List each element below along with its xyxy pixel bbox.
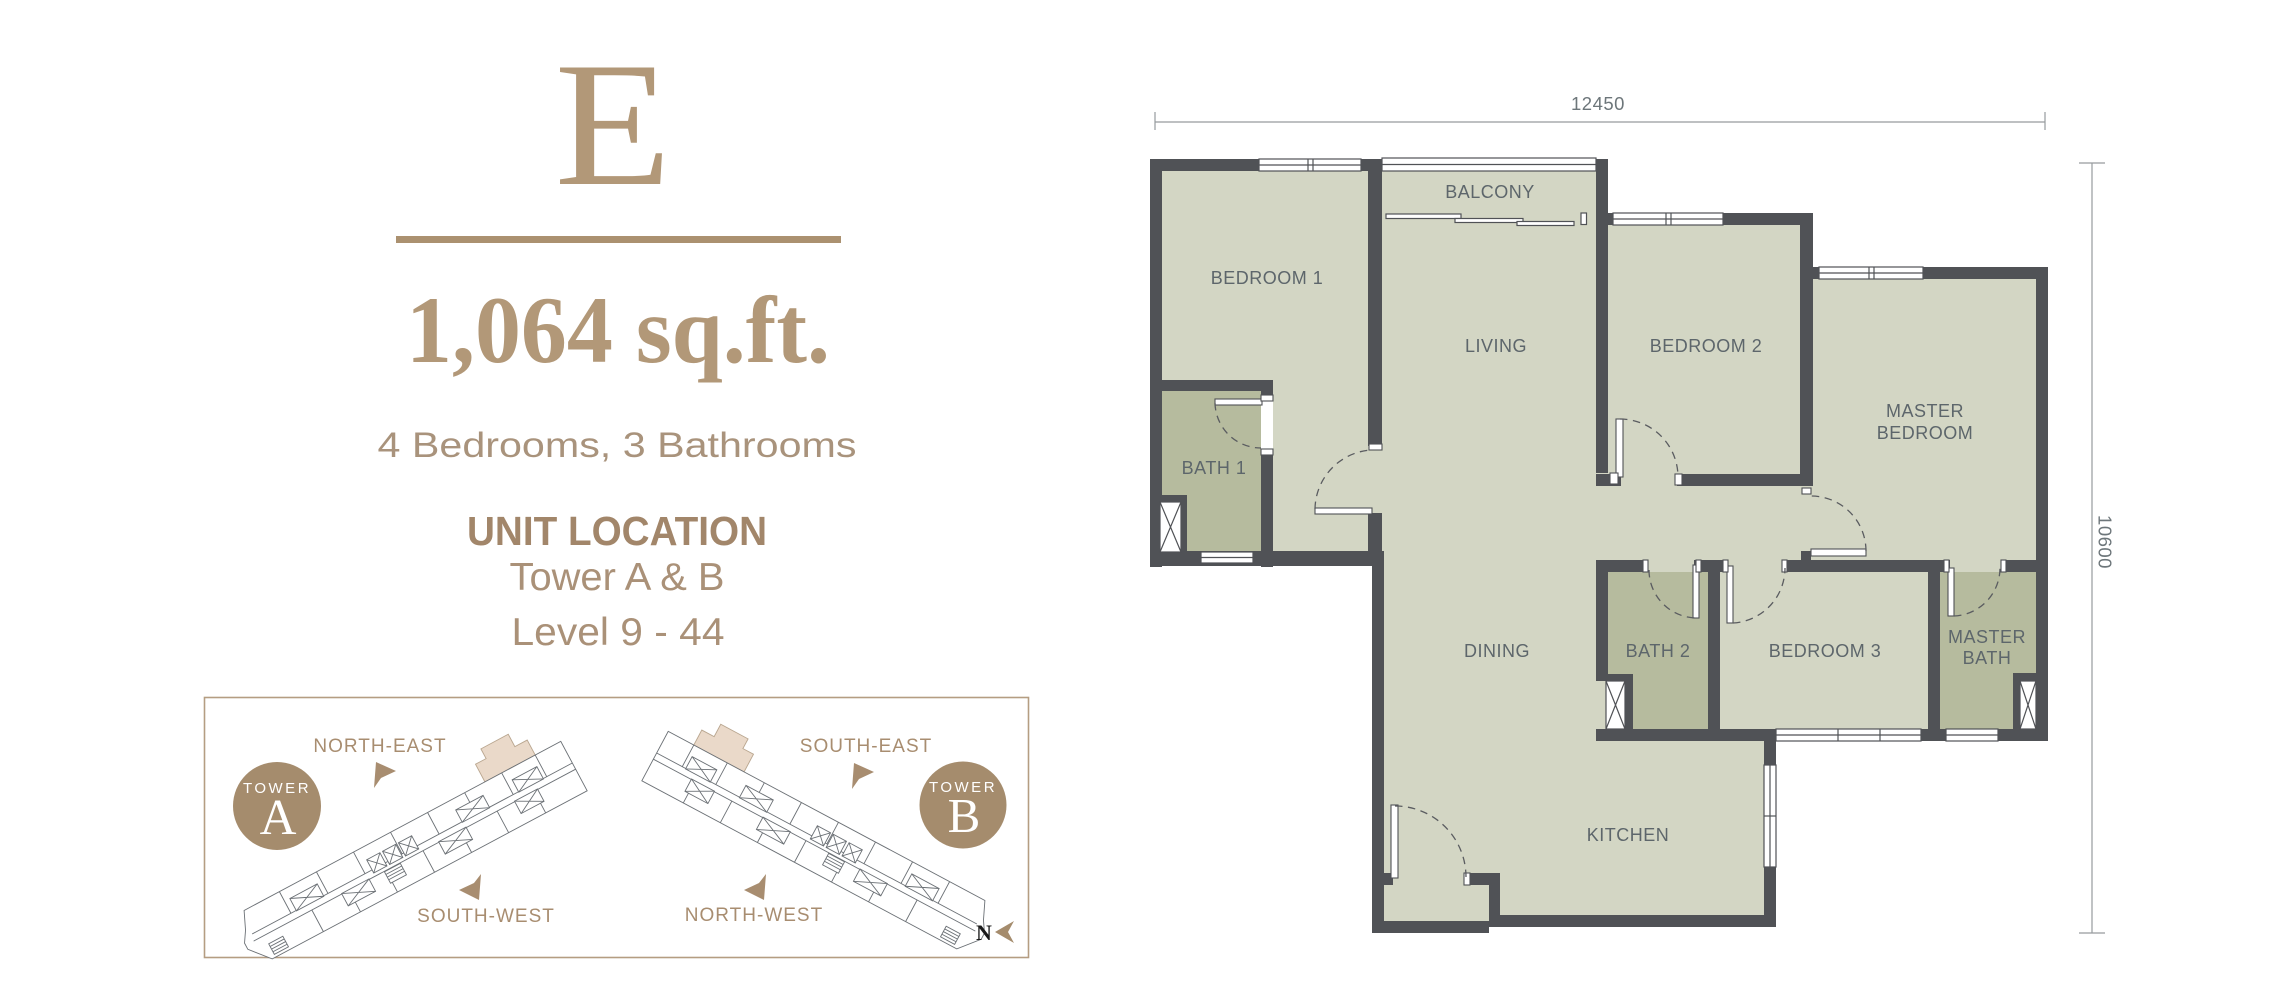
- svg-text:Level 9 - 44: Level 9 - 44: [512, 611, 725, 654]
- svg-text:A: A: [260, 790, 297, 846]
- svg-text:SOUTH-WEST: SOUTH-WEST: [417, 906, 555, 927]
- svg-text:12450: 12450: [1571, 93, 1625, 114]
- svg-text:BEDROOM: BEDROOM: [1877, 423, 1974, 443]
- svg-text:LIVING: LIVING: [1465, 336, 1527, 356]
- svg-text:N: N: [976, 920, 992, 945]
- svg-text:MASTER: MASTER: [1886, 401, 1964, 421]
- svg-text:1,064 sq.ft.: 1,064 sq.ft.: [406, 277, 830, 383]
- svg-text:KITCHEN: KITCHEN: [1587, 825, 1670, 845]
- svg-text:NORTH-WEST: NORTH-WEST: [685, 905, 823, 926]
- svg-text:BATH 1: BATH 1: [1182, 458, 1247, 478]
- svg-text:BALCONY: BALCONY: [1445, 182, 1535, 202]
- svg-text:BATH 2: BATH 2: [1626, 641, 1691, 661]
- svg-text:UNIT LOCATION: UNIT LOCATION: [467, 508, 767, 554]
- svg-text:DINING: DINING: [1464, 641, 1530, 661]
- svg-text:BEDROOM 3: BEDROOM 3: [1769, 641, 1882, 661]
- svg-text:BEDROOM 2: BEDROOM 2: [1650, 336, 1763, 356]
- svg-text:MASTER: MASTER: [1948, 627, 2026, 647]
- svg-text:Tower A & B: Tower A & B: [510, 556, 725, 599]
- svg-text:BEDROOM 1: BEDROOM 1: [1211, 268, 1324, 288]
- svg-text:E: E: [555, 25, 672, 223]
- svg-text:B: B: [948, 788, 981, 843]
- svg-text:4 Bedrooms, 3 Bathrooms: 4 Bedrooms, 3 Bathrooms: [378, 426, 857, 465]
- svg-text:BATH: BATH: [1963, 648, 2012, 668]
- svg-text:SOUTH-EAST: SOUTH-EAST: [800, 736, 932, 757]
- svg-text:NORTH-EAST: NORTH-EAST: [313, 736, 446, 757]
- svg-text:10600: 10600: [2095, 515, 2116, 569]
